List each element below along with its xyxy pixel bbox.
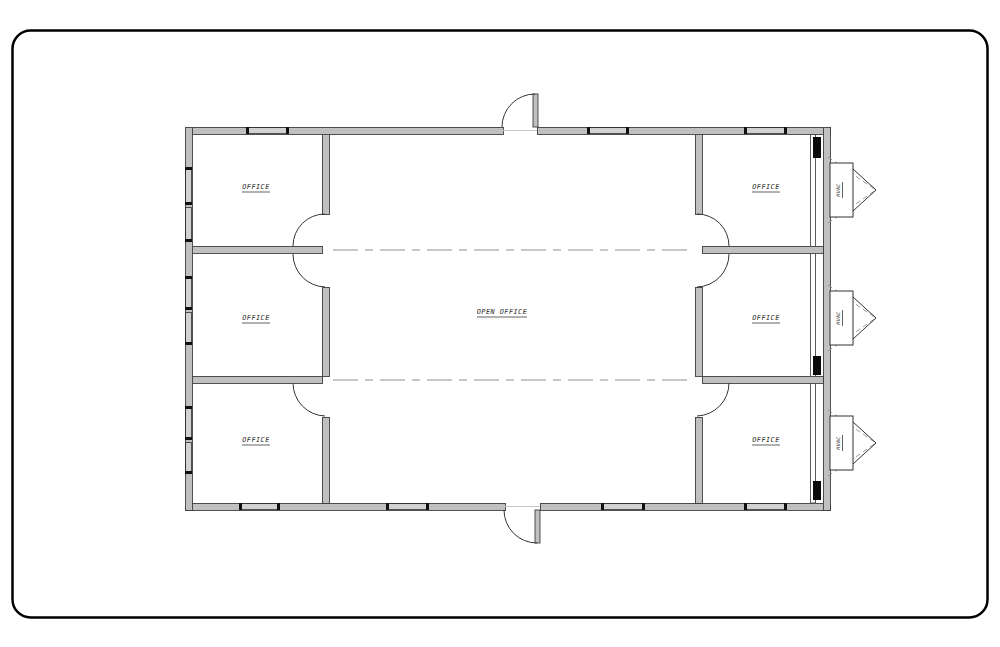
room-label-office-bottom-right: OFFICE [752,436,780,444]
furring-wall [811,134,816,503]
room-label-open-office: OPEN OFFICE [477,308,528,316]
bottom-entry-door-leaf [535,510,540,543]
room-label-office-top-left: OFFICE [242,183,270,191]
room-label-office-bottom-left: OFFICE [242,436,270,444]
hvac-label: HVAC [835,436,841,450]
room-label-office-top-right: OFFICE [752,183,780,191]
room-label-office-middle-right: OFFICE [752,314,780,322]
floor-plan: HVAC HVAC HVAC OFFICE OFFICE OFFICE OFFI… [0,0,1000,647]
room-label-office-middle-left: OFFICE [242,314,270,322]
top-entry-door-leaf [533,94,538,127]
hvac-label: HVAC [835,311,841,325]
page: HVAC HVAC HVAC OFFICE OFFICE OFFICE OFFI… [0,0,1000,647]
hvac-label: HVAC [835,183,841,197]
